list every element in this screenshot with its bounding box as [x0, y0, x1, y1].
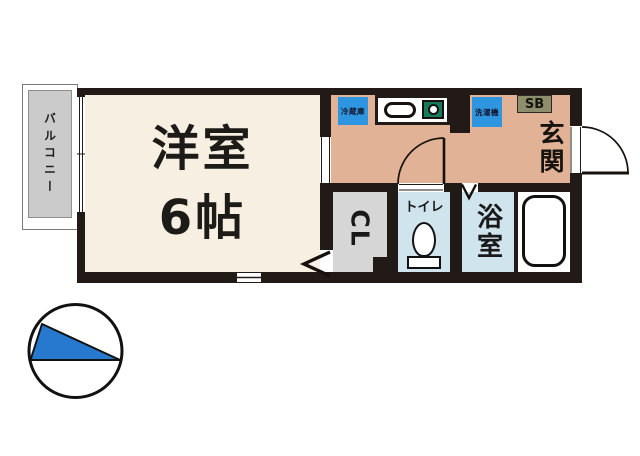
balcony-outline: バルコニー	[22, 84, 78, 230]
kitchen-hall-area: 冷蔵庫 洗濯機 SB 玄関	[331, 95, 570, 183]
refrigerator-label: 冷蔵庫	[341, 106, 365, 117]
shoe-box: SB	[517, 95, 552, 113]
balcony-label: バルコニー	[42, 112, 59, 197]
toilet-tank-icon	[407, 256, 441, 269]
entrance-doorway	[570, 126, 582, 173]
bathtub-icon	[522, 195, 566, 267]
unit-outline: 洋室 6帖 冷蔵庫 洗濯機 SB 玄関 CL	[77, 88, 582, 283]
washing-machine-label: 洗濯機	[475, 107, 499, 118]
stove-burner-icon	[422, 100, 444, 119]
shoe-box-label: SB	[525, 97, 544, 112]
balcony-sliding-window-icon	[77, 97, 85, 212]
western-room-text: 洋室 6帖	[151, 115, 253, 251]
washing-machine-box: 洗濯機	[472, 97, 502, 127]
kitchen-counter	[375, 95, 450, 125]
toilet-label: トイレ	[398, 196, 450, 215]
north-compass-icon	[29, 305, 122, 398]
kitchen-sink-icon	[384, 102, 416, 118]
toilet-doorway	[398, 183, 444, 192]
closet-room: CL	[333, 192, 387, 272]
wall-notch	[373, 257, 387, 272]
bathroom-label: 浴室	[470, 203, 507, 261]
entrance-door-swing-icon	[582, 127, 629, 173]
bathroom-doorway	[462, 183, 478, 192]
wall-stub	[450, 95, 470, 133]
bathroom-room: 浴室	[462, 192, 514, 272]
western-room-size: 6帖	[151, 184, 253, 252]
bathtub-area	[518, 192, 570, 272]
bottom-wall-vent	[237, 273, 261, 282]
burner-circle-icon	[428, 104, 439, 115]
western-room-label: 洋室	[151, 115, 253, 183]
entrance-label: 玄関	[532, 120, 568, 176]
floor-plan-canvas: バルコニー 洋室 6帖 冷蔵庫 洗濯機	[0, 0, 640, 456]
closet-label: CL	[346, 209, 375, 247]
western-room: 洋室 6帖	[85, 95, 320, 272]
toilet-room: トイレ	[398, 192, 450, 272]
refrigerator-box: 冷蔵庫	[338, 97, 368, 125]
toilet-icon	[412, 222, 436, 257]
balcony-area: バルコニー	[28, 90, 72, 218]
closet-doorway	[320, 250, 333, 272]
western-room-doorway	[320, 137, 331, 183]
